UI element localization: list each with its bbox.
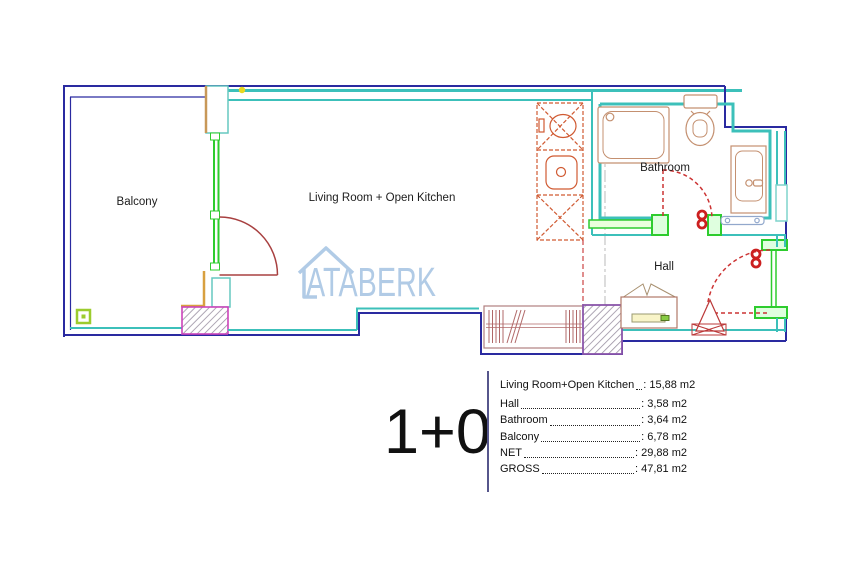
dotted-leader	[521, 408, 640, 409]
area-row-living: Living Room+Open Kitchen : 15,88 m2	[500, 377, 687, 393]
hall-label: Hall	[635, 261, 693, 273]
living-room-label: Living Room + Open Kitchen	[302, 192, 462, 204]
survey-point-dot	[239, 87, 245, 93]
wardrobe-closet	[484, 306, 584, 348]
counter-cell	[537, 195, 583, 240]
area-row-hall: Hall : 3,58 m2	[500, 396, 687, 412]
entrance-door	[692, 235, 787, 335]
balcony-drain-symbol	[77, 310, 90, 323]
door-frame-left	[652, 215, 668, 235]
dotted-leader	[541, 441, 640, 442]
shoe-cabinet	[621, 284, 677, 328]
dotted-leader	[636, 389, 642, 390]
kitchen-counter	[537, 103, 583, 240]
watermark-logo: ATABERK	[299, 248, 436, 305]
dotted-leader	[550, 425, 640, 426]
door-frame-right	[708, 215, 721, 235]
area-row-net: NET : 29,88 m2	[500, 445, 687, 461]
toilet	[684, 95, 717, 146]
balcony-label: Balcony	[103, 196, 171, 208]
column-hatch-right	[583, 305, 622, 354]
shower-tray	[598, 107, 669, 163]
dotted-leader	[542, 473, 634, 474]
legend-divider	[487, 371, 489, 492]
entrance-door-arc	[707, 250, 770, 313]
balcony-door-arc	[220, 217, 278, 275]
kitchen-sink	[546, 156, 577, 189]
dotted-leader	[524, 457, 634, 458]
area-table: Living Room+Open Kitchen : 15,88 m2 Hall…	[500, 377, 687, 477]
door-swing-marker	[698, 211, 706, 228]
washbasin-vanity	[731, 146, 766, 213]
bathroom-label: Bathroom	[625, 162, 705, 174]
low-wall-green	[589, 220, 652, 228]
balcony-window	[181, 86, 230, 307]
column-hatch-left	[182, 307, 228, 334]
towel-rail	[721, 217, 764, 225]
cooktop-oval	[550, 115, 576, 138]
area-row-balcony: Balcony : 6,78 m2	[500, 429, 687, 445]
door-frame-top	[762, 240, 787, 250]
bathroom-door-arc	[663, 170, 712, 228]
area-row-gross: GROSS : 47,81 m2	[500, 461, 687, 477]
area-row-bathroom: Bathroom : 3,64 m2	[500, 412, 687, 428]
floor-plan-drawing: ATABERK	[0, 0, 850, 566]
door-swing-marker	[752, 250, 760, 267]
unit-type-label: 1+0	[384, 392, 486, 472]
bathroom-window	[776, 185, 787, 221]
floor-plan-page: ATABERK Balcony Living Room + Open Kitch…	[0, 0, 850, 566]
watermark-brand-text: ATABERK	[306, 259, 436, 305]
